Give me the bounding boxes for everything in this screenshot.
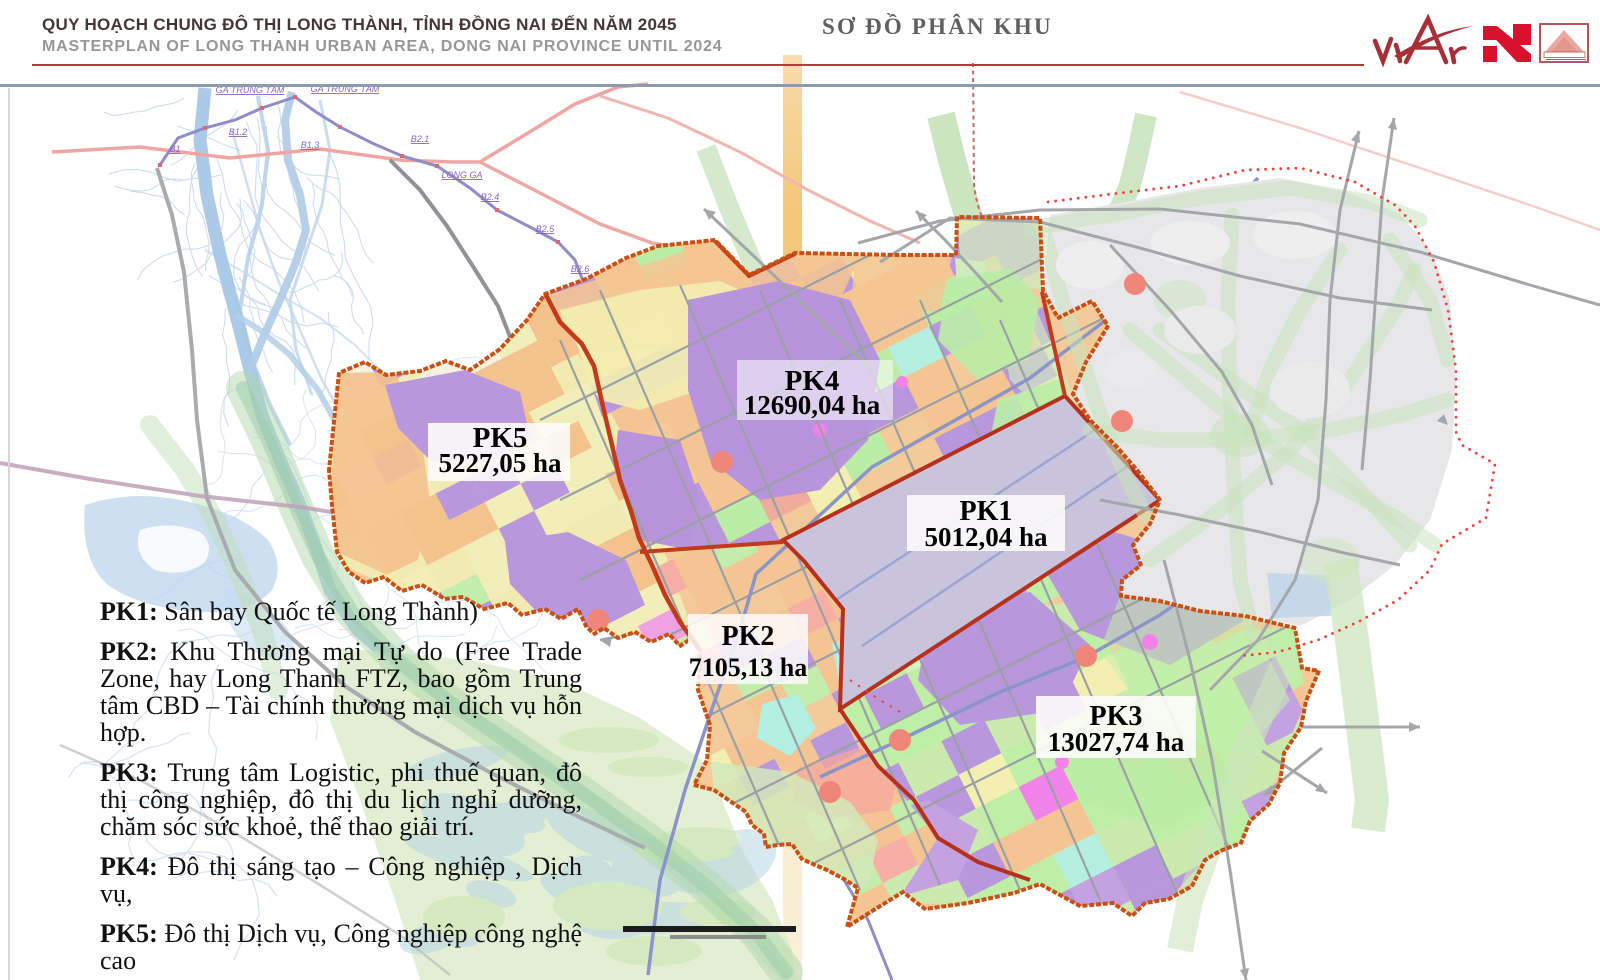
svg-text:B2.1: B2.1: [411, 134, 430, 144]
svg-text:B1: B1: [169, 144, 180, 154]
svg-text:5012,04 ha: 5012,04 ha: [924, 522, 1048, 552]
svg-text:PK2: PK2: [722, 621, 775, 652]
svg-text:5227,05 ha: 5227,05 ha: [438, 448, 562, 478]
svg-text:B1.3: B1.3: [301, 140, 320, 150]
svg-text:LONG GA: LONG GA: [441, 170, 482, 180]
svg-text:7105,13 ha: 7105,13 ha: [689, 653, 807, 682]
svg-text:B1.2: B1.2: [229, 127, 248, 137]
svg-text:13027,74 ha: 13027,74 ha: [1048, 727, 1185, 757]
svg-text:B2.5: B2.5: [536, 224, 556, 234]
svg-text:12690,04 ha: 12690,04 ha: [744, 390, 881, 420]
svg-text:B2.4: B2.4: [481, 192, 500, 202]
svg-text:B2.6: B2.6: [571, 264, 590, 274]
svg-text:GA TRUNG TÂM: GA TRUNG TÂM: [216, 85, 285, 95]
